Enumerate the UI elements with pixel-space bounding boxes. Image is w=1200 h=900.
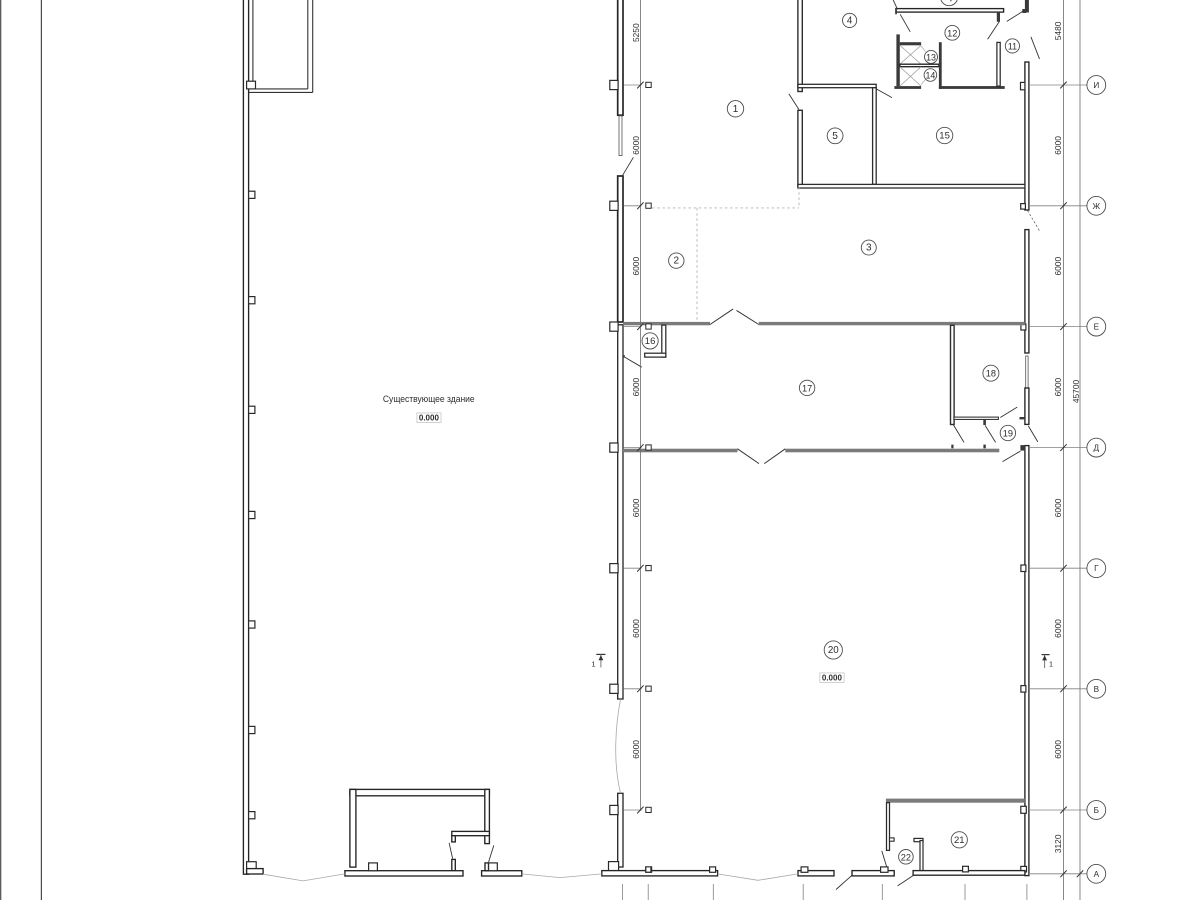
svg-text:2: 2	[674, 256, 680, 267]
svg-text:6000: 6000	[1053, 498, 1063, 517]
svg-text:3120: 3120	[1053, 834, 1063, 853]
svg-text:6000: 6000	[1053, 136, 1063, 155]
svg-text:12: 12	[947, 28, 957, 38]
svg-text:45700: 45700	[1071, 380, 1081, 404]
svg-text:1: 1	[591, 660, 595, 669]
svg-text:11: 11	[1008, 41, 1017, 51]
svg-text:Д: Д	[1094, 444, 1100, 453]
svg-text:А: А	[1094, 870, 1100, 879]
svg-text:20: 20	[828, 645, 839, 656]
svg-text:6000: 6000	[1053, 377, 1063, 396]
svg-text:22: 22	[901, 852, 911, 862]
svg-text:6000: 6000	[631, 257, 641, 276]
svg-text:6000: 6000	[1053, 257, 1063, 276]
svg-text:3: 3	[866, 243, 872, 254]
svg-text:Существующее здание: Существующее здание	[383, 394, 475, 404]
svg-text:5250: 5250	[631, 23, 641, 42]
svg-text:1: 1	[1049, 660, 1053, 669]
svg-text:18: 18	[986, 369, 996, 379]
svg-text:6000: 6000	[631, 740, 641, 759]
svg-text:Ж: Ж	[1093, 202, 1101, 211]
svg-text:21: 21	[954, 835, 965, 846]
svg-text:6000: 6000	[631, 377, 641, 396]
svg-text:6000: 6000	[631, 136, 641, 155]
svg-text:14: 14	[925, 71, 935, 81]
svg-text:1: 1	[733, 104, 739, 115]
svg-text:И: И	[1093, 81, 1099, 90]
svg-text:4: 4	[847, 15, 853, 26]
svg-text:Е: Е	[1094, 323, 1100, 332]
svg-text:0.000: 0.000	[419, 414, 440, 423]
svg-text:5480: 5480	[1053, 21, 1063, 40]
svg-text:Б: Б	[1094, 806, 1099, 815]
svg-text:17: 17	[802, 383, 812, 393]
svg-text:16: 16	[645, 336, 656, 347]
svg-text:Г: Г	[1094, 564, 1099, 573]
svg-text:13: 13	[926, 52, 936, 62]
svg-text:6000: 6000	[631, 498, 641, 517]
svg-text:6000: 6000	[1053, 740, 1063, 759]
svg-text:0.000: 0.000	[822, 674, 843, 683]
svg-text:5: 5	[832, 131, 838, 142]
svg-text:6000: 6000	[631, 619, 641, 638]
svg-text:В: В	[1094, 685, 1100, 694]
svg-text:15: 15	[939, 131, 950, 142]
svg-text:6000: 6000	[1053, 619, 1063, 638]
svg-text:19: 19	[1003, 429, 1013, 439]
